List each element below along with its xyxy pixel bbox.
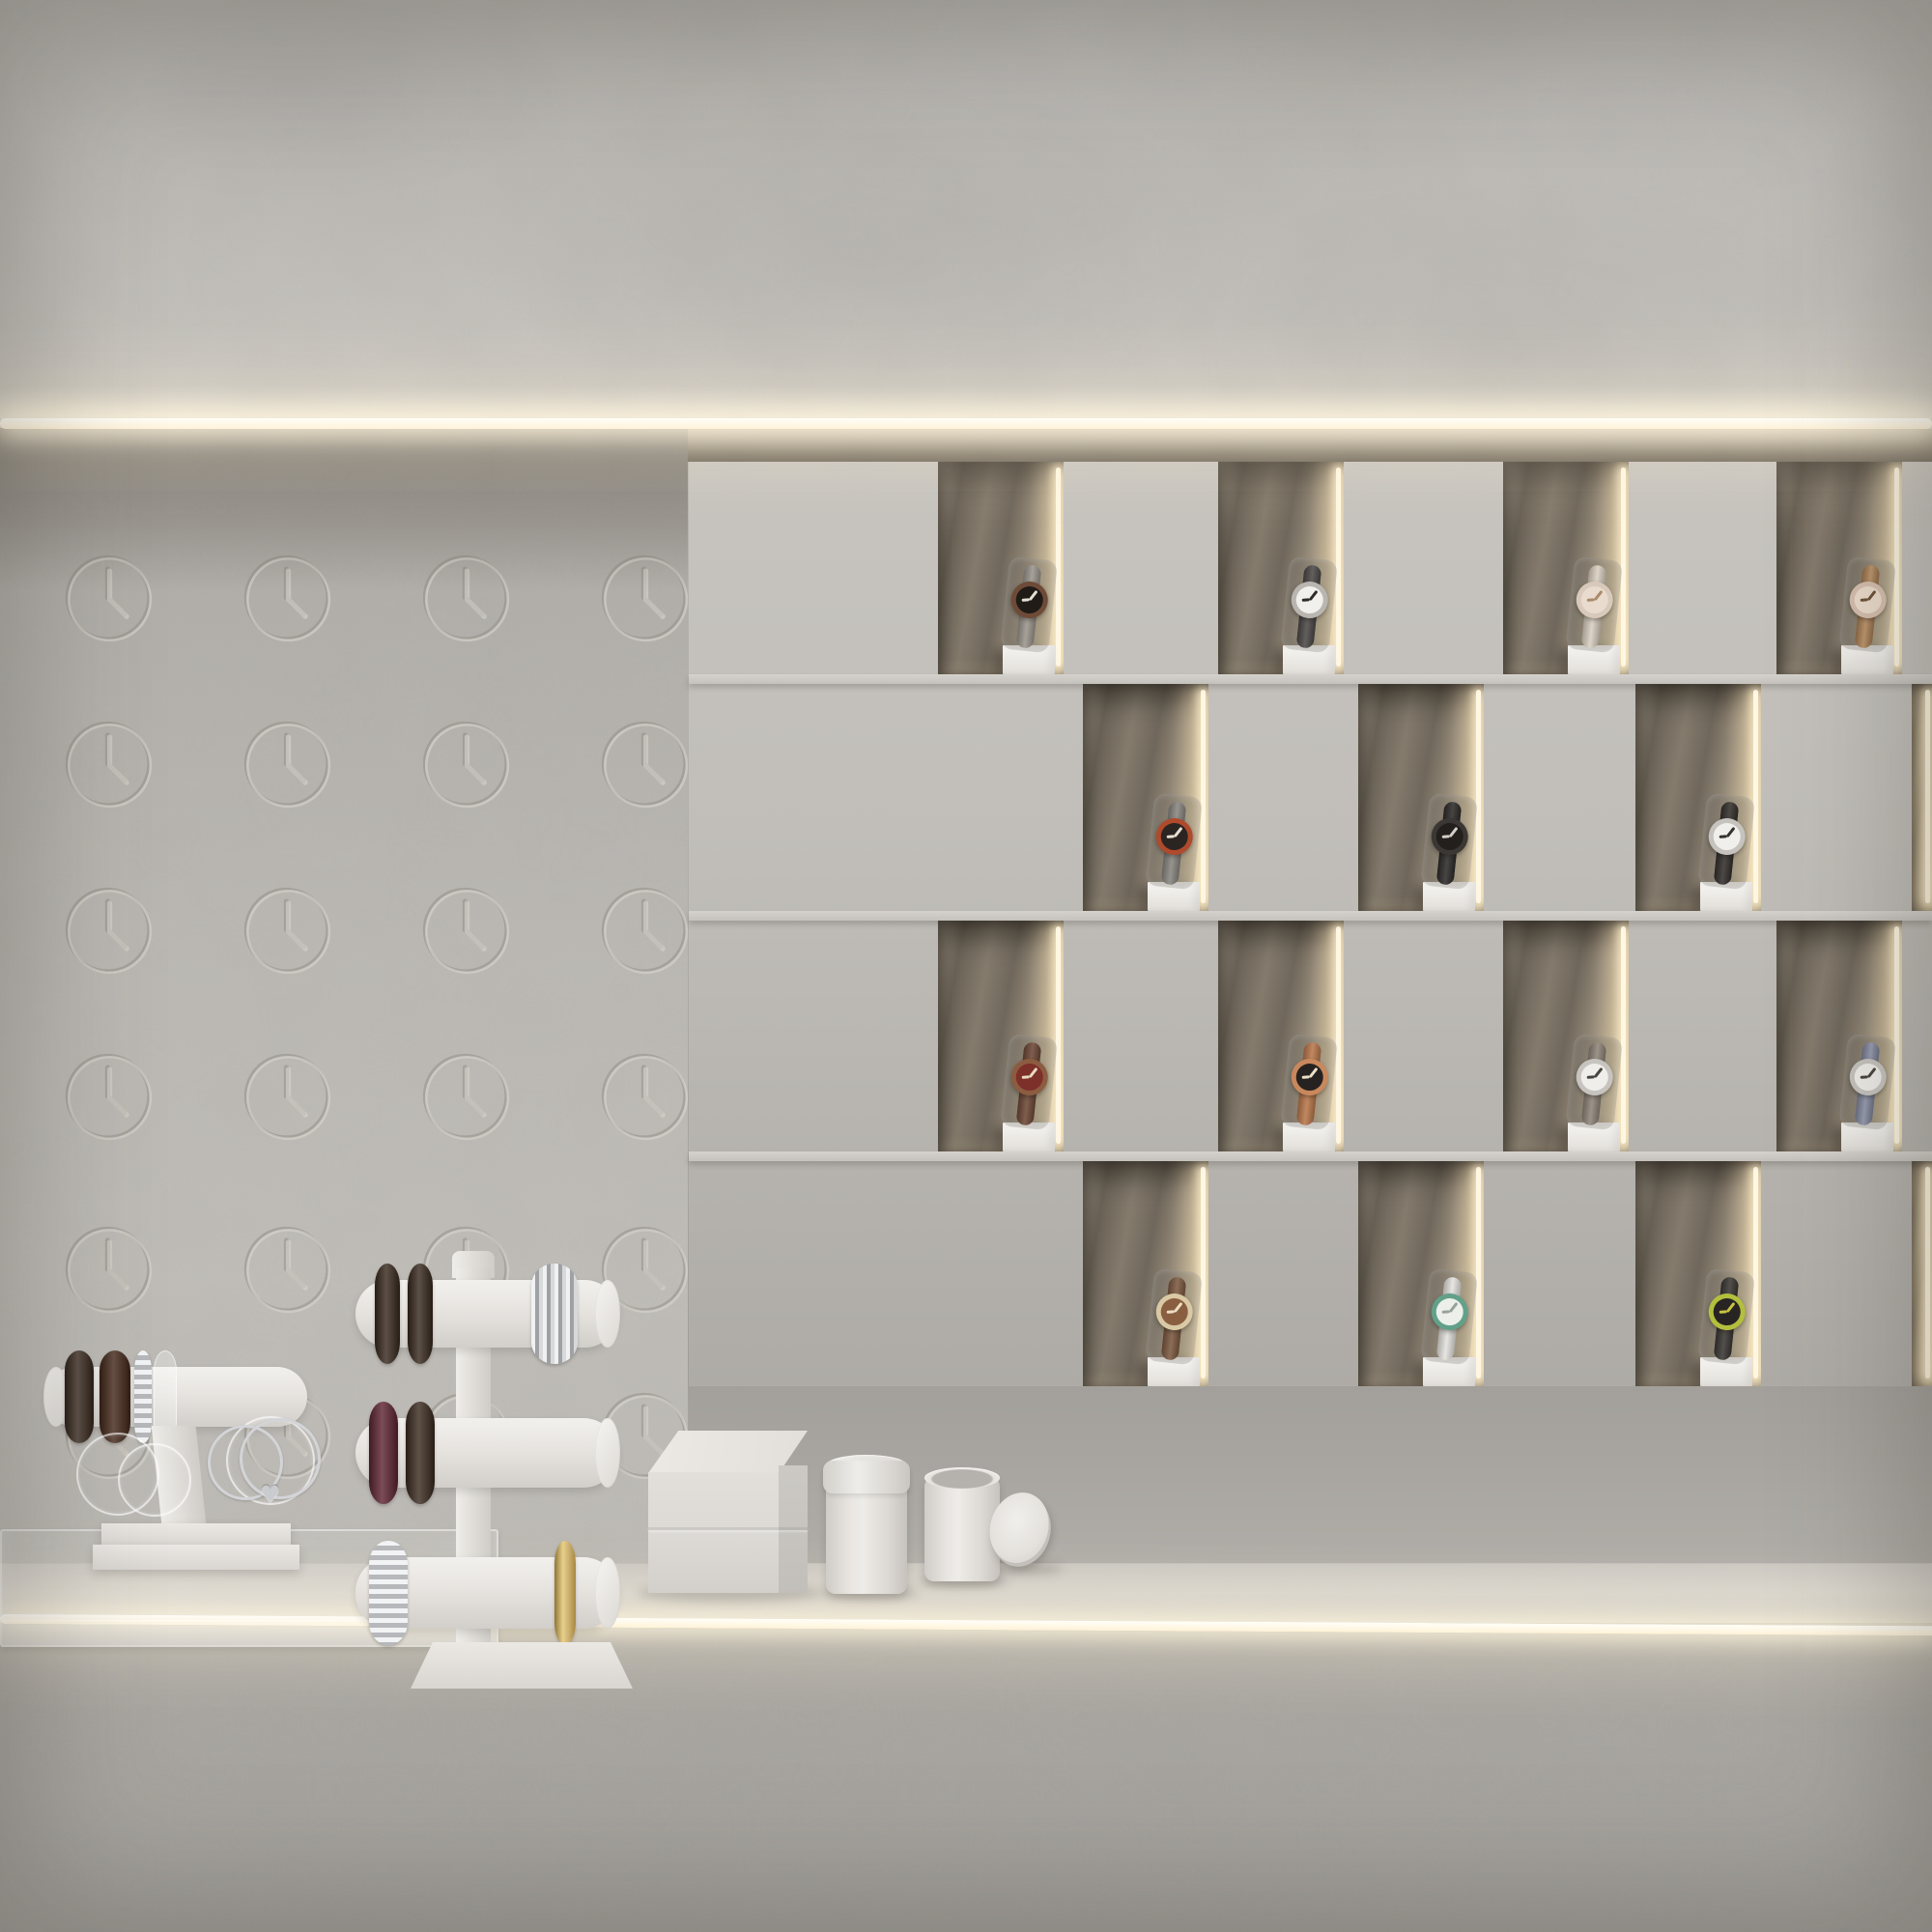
display-niche-r3-n4	[1776, 921, 1902, 1151]
watch-dial	[1853, 585, 1883, 615]
minute-hand	[1867, 1067, 1876, 1078]
bar-end-cap	[595, 1280, 620, 1348]
embossed-clock-motif	[241, 1051, 333, 1143]
display-niche-r1-n4	[1776, 462, 1902, 674]
watch-silver-white-grayband	[1284, 562, 1335, 651]
embossed-clock-motif	[599, 885, 691, 977]
display-niche-r2-n2	[1358, 684, 1484, 911]
niche-led-strip	[1894, 468, 1899, 667]
display-niche-r1-n1	[938, 462, 1064, 674]
watch-dial	[1712, 1297, 1742, 1327]
display-niche-r3-n2	[1218, 921, 1344, 1151]
niche-led-strip	[1894, 926, 1899, 1144]
hour-hand	[1442, 836, 1450, 838]
watch-dial	[1579, 585, 1609, 615]
hour-hand	[1442, 1311, 1450, 1314]
embossed-clock-motif	[241, 885, 333, 977]
canister-lid-band	[823, 1461, 910, 1493]
display-niche-r3-n1	[938, 921, 1064, 1151]
plaster-mottling	[0, 0, 1932, 419]
hour-hand	[1719, 836, 1727, 838]
white-gift-box-with-lid	[648, 1431, 808, 1593]
niche-led-strip	[1336, 926, 1341, 1144]
embossed-clock-motif	[420, 885, 512, 977]
watch-dial	[1159, 822, 1189, 852]
tiered-stand-bar-top	[355, 1280, 618, 1348]
bar-end-cap	[595, 1418, 620, 1488]
embossed-clock-motif	[420, 1051, 512, 1143]
minute-hand	[1309, 590, 1318, 601]
minute-hand	[1309, 1067, 1318, 1078]
watch-bronze-black	[1004, 562, 1055, 651]
wood-bangle	[406, 1402, 435, 1504]
embossed-clock-motif	[599, 1051, 691, 1143]
minute-hand	[1726, 1302, 1735, 1313]
watch-ember-orange-bezel	[1149, 799, 1200, 888]
embossed-clock-motif	[241, 1224, 333, 1316]
wine-bangle	[369, 1402, 398, 1504]
display-niche-r3-n3	[1503, 921, 1629, 1151]
display-niche-r1-n2	[1218, 462, 1344, 674]
watch-store-scene: ♥	[0, 0, 1932, 1932]
niche-led-strip	[1925, 1167, 1930, 1378]
display-niche-r4-n2	[1358, 1161, 1484, 1386]
embossed-clock-motif	[63, 885, 155, 977]
watch-green-marble-white	[1424, 1274, 1475, 1363]
niche-led-strip	[1621, 926, 1626, 1144]
hour-hand	[1022, 1076, 1030, 1079]
niche-led-strip	[1476, 1167, 1481, 1378]
tiered-stand-base	[411, 1642, 633, 1689]
display-niche-r4-n4	[1912, 1161, 1932, 1386]
watch-dial	[1014, 585, 1044, 615]
watch-dial	[1853, 1063, 1883, 1093]
embossed-clock-motif	[63, 1051, 155, 1143]
watch-rose-tanleather	[1842, 562, 1893, 651]
single-tier-bracelet-stand: ♥	[39, 1345, 338, 1578]
wood-bangle	[408, 1264, 433, 1364]
watch-wood-cream-ring	[1149, 1274, 1200, 1363]
embossed-clock-motif	[63, 1224, 155, 1316]
minute-hand	[1867, 590, 1876, 601]
niche-led-strip	[1753, 1167, 1758, 1378]
hour-hand	[1167, 836, 1175, 838]
minute-hand	[1449, 1302, 1458, 1313]
niche-led-strip	[1476, 690, 1481, 903]
watch-dial	[1435, 1297, 1464, 1327]
watch-wood-burgundy	[1004, 1039, 1055, 1128]
wall-led-strip	[0, 418, 1932, 429]
display-niche-r2-n3	[1635, 684, 1761, 911]
watch-white-slateblueband	[1842, 1039, 1893, 1128]
counter-front-face	[0, 1623, 1932, 1932]
hour-hand	[1167, 1311, 1175, 1314]
wood-bangle	[375, 1264, 400, 1364]
single-stand-base	[101, 1523, 291, 1547]
niche-led-strip	[1753, 690, 1758, 903]
niche-led-strip	[1621, 468, 1626, 667]
white-canister-with-lid	[826, 1455, 907, 1594]
single-stand-base-slab	[93, 1545, 299, 1570]
watch-dial	[1712, 822, 1742, 852]
watch-white-taupeband	[1569, 1039, 1620, 1128]
bar-end-cap	[595, 1557, 620, 1629]
display-niche-r2-n4	[1912, 684, 1932, 911]
watch-dial	[1014, 1063, 1044, 1093]
shelf-unit-soffit	[688, 429, 1932, 462]
embossed-clock-motif	[420, 719, 512, 810]
minute-hand	[1029, 590, 1037, 601]
wood-bangle	[99, 1350, 130, 1443]
watch-dial	[1294, 1063, 1324, 1093]
embossed-clock-motif	[241, 719, 333, 810]
watch-dial	[1435, 822, 1464, 852]
three-tier-bracelet-stand	[348, 1251, 639, 1697]
hour-hand	[1022, 599, 1030, 602]
display-niche-r4-n3	[1635, 1161, 1761, 1386]
hour-hand	[1861, 1076, 1868, 1079]
minute-hand	[1594, 590, 1603, 601]
silver-trio	[531, 1264, 578, 1364]
gift-box-front	[648, 1472, 779, 1593]
tiered-stand-bar-middle	[355, 1418, 618, 1488]
minute-hand	[1174, 1302, 1182, 1313]
gift-box-lid-seam	[648, 1527, 808, 1530]
watch-dial	[1159, 1297, 1189, 1327]
minute-hand	[1594, 1067, 1603, 1078]
hour-hand	[1302, 599, 1310, 602]
niche-led-strip	[1201, 1167, 1206, 1378]
minute-hand	[1726, 827, 1735, 838]
hour-hand	[1587, 1076, 1595, 1079]
hour-hand	[1861, 599, 1868, 602]
watch-lime-ring-charcoal	[1701, 1274, 1752, 1363]
minute-hand	[1029, 1067, 1037, 1078]
embossed-clock-motif	[599, 719, 691, 810]
watch-cream-blush	[1569, 562, 1620, 651]
watch-display-shelf-unit	[688, 462, 1932, 1386]
hour-hand	[1587, 599, 1595, 602]
heart-pendant: ♥	[260, 1483, 281, 1506]
watch-all-black	[1424, 799, 1475, 888]
canister-open-mouth	[924, 1467, 1000, 1489]
niche-led-strip	[1201, 690, 1206, 903]
shelf-divider	[689, 911, 1932, 921]
beaded-bracelet	[134, 1350, 152, 1443]
gold-bangle	[554, 1541, 576, 1645]
display-niche-r4-n1	[1083, 1161, 1208, 1386]
wood-bangle	[65, 1350, 94, 1443]
wall-shadow-band	[0, 428, 688, 592]
display-niche-r1-n3	[1503, 462, 1629, 674]
plaster-wall-upper	[0, 0, 1932, 419]
niche-led-strip	[1336, 468, 1341, 667]
embossed-clock-motif	[63, 719, 155, 810]
shelf-divider	[689, 1151, 1932, 1161]
hour-hand	[1719, 1311, 1727, 1314]
display-niche-r2-n1	[1083, 684, 1208, 911]
watch-white-dial-blackband	[1701, 799, 1752, 888]
niche-led-strip	[1056, 468, 1061, 667]
niche-led-strip	[1925, 690, 1930, 903]
shelf-divider	[689, 674, 1932, 684]
hour-hand	[1302, 1076, 1310, 1079]
niche-led-strip	[1056, 926, 1061, 1144]
tiered-stand-bar-bottom	[355, 1557, 618, 1629]
beaded-bracelet	[369, 1541, 408, 1645]
watch-dial	[1579, 1063, 1609, 1093]
minute-hand	[1449, 827, 1458, 838]
watch-copper-black	[1284, 1039, 1335, 1128]
acrylic-hoop	[118, 1443, 191, 1517]
watch-dial	[1294, 585, 1324, 615]
minute-hand	[1174, 827, 1182, 838]
